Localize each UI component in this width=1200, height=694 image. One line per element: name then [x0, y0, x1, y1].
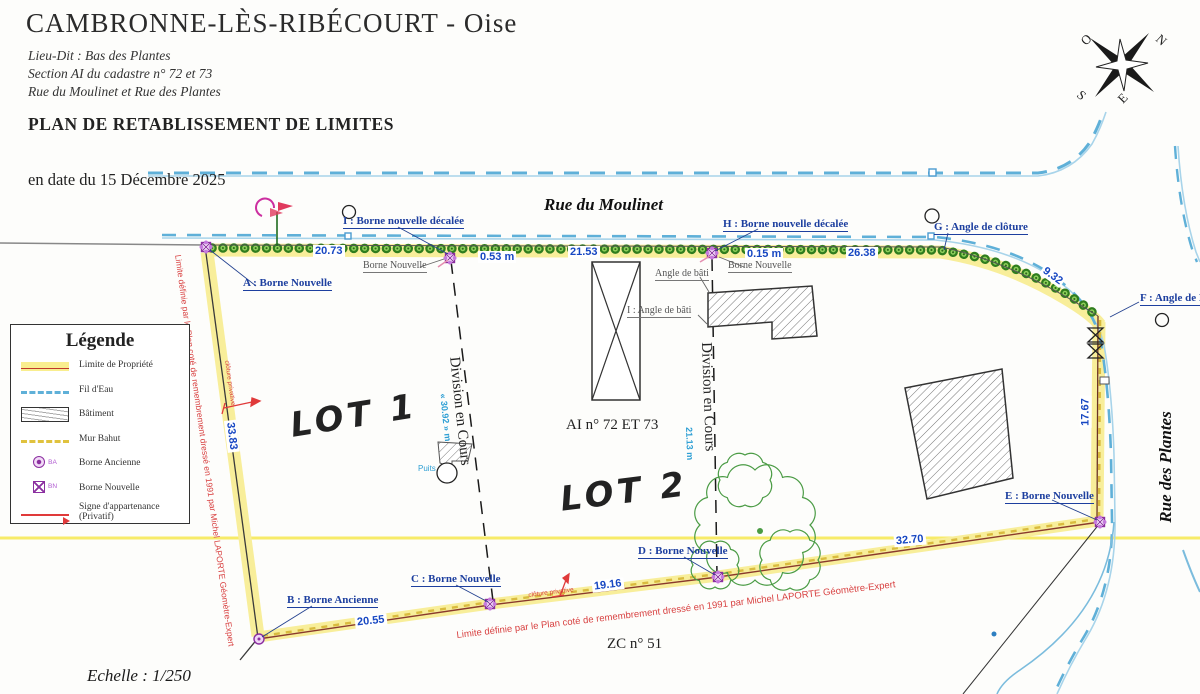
point-label-F: F : Angle de Pile [1140, 292, 1200, 306]
well-label: Puits [418, 464, 436, 473]
point-label-B: B : Borne Ancienne [287, 594, 378, 608]
sub-label-borne-nouvelle-1: Borne Nouvelle [363, 260, 427, 273]
plan-title: PLAN DE RETABLISSEMENT DE LIMITES [28, 114, 394, 135]
building-swatch [21, 407, 69, 422]
point-label-A: A : Borne Nouvelle [243, 277, 332, 291]
property-limit-swatch [21, 362, 69, 371]
compass-south-label: S [1074, 87, 1089, 103]
point-label-D: D : Borne Nouvelle [638, 545, 728, 559]
water-line-swatch [21, 391, 69, 394]
point-label-C: C : Borne Nouvelle [411, 573, 501, 587]
point-label-G: G : Angle de clôture [934, 221, 1028, 235]
new-marker-icon [33, 481, 45, 493]
lieu-dit-line: Lieu-Dit : Bas des Plantes [28, 48, 170, 64]
compass-north-label: N [1153, 31, 1170, 49]
compass-rose: N O S E [1074, 31, 1170, 106]
legend-item-old-marker: BA Borne Ancienne [21, 456, 181, 470]
legend-item-new-marker: BN Borne Nouvelle [21, 481, 181, 495]
sub-label-borne-nouvelle-2: Borne Nouvelle [728, 260, 792, 273]
cadastre-ref: AI n° 72 ET 73 [566, 417, 658, 434]
legend-box: Légende Limite de Propriété Fil d'Eau Bâ… [10, 324, 190, 524]
measure-h-offset: 0.15 m [745, 248, 783, 260]
borne-D [712, 571, 725, 584]
scale-label: Echelle : 1/250 [87, 666, 191, 686]
borne-A [200, 241, 213, 254]
measure-division2: 21.13 m [684, 427, 695, 460]
measure-i-offset: 0.53 m [478, 251, 516, 263]
streets-line: Rue du Moulinet et Rue des Plantes [28, 84, 221, 100]
street-edge-line [0, 243, 204, 245]
legend-item-ownership-sign: Signe d'appartenance (Privatif) [21, 505, 181, 519]
low-wall-swatch [21, 440, 69, 443]
page-title: CAMBRONNE-LÈS-RIBÉCOURT - Oise [26, 8, 517, 39]
point-label-I: I : Borne nouvelle décalée [343, 215, 464, 229]
south-parcel-ref: ZC n° 51 [607, 636, 662, 653]
measure-a-i: 20.73 [313, 245, 345, 257]
compass-east-label: E [1114, 90, 1130, 106]
measure-i-h: 21.53 [568, 246, 600, 258]
point-label-H: H : Borne nouvelle décalée [723, 218, 848, 232]
legend-item-property-limit: Limite de Propriété [21, 358, 181, 372]
sub-label-angle-bati-2: I : Angle de bâti [627, 305, 691, 318]
measure-h-g: 26.38 [846, 247, 878, 259]
old-marker-icon [33, 456, 45, 468]
legend-title: Légende [11, 330, 189, 352]
point-label-E: E : Borne Nouvelle [1005, 490, 1094, 504]
measure-f-e: 17.67 [1080, 396, 1092, 428]
date-line: en date du 15 Décembre 2025 [28, 170, 225, 190]
compass-west-label: O [1077, 31, 1094, 48]
ownership-arrow-icon [21, 514, 69, 516]
legend-item-water-line: Fil d'Eau [21, 383, 181, 397]
legend-item-building: Bâtiment [21, 407, 181, 421]
street-rue-du-moulinet: Rue du Moulinet [544, 195, 663, 215]
well-symbol [437, 463, 457, 483]
survey-plan-page: N O S E CAMBRONNE-LÈS-RIBÉCOURT - Oise L… [0, 0, 1200, 694]
borne-C [484, 598, 497, 611]
legend-item-low-wall: Mur Bahut [21, 432, 181, 446]
section-line: Section AI du cadastre n° 72 et 73 [28, 66, 212, 82]
sub-label-angle-bati-1: Angle de bâti [655, 268, 709, 281]
street-rue-des-plantes: Rue des Plantes [1156, 411, 1176, 522]
borne-E [1094, 516, 1107, 529]
